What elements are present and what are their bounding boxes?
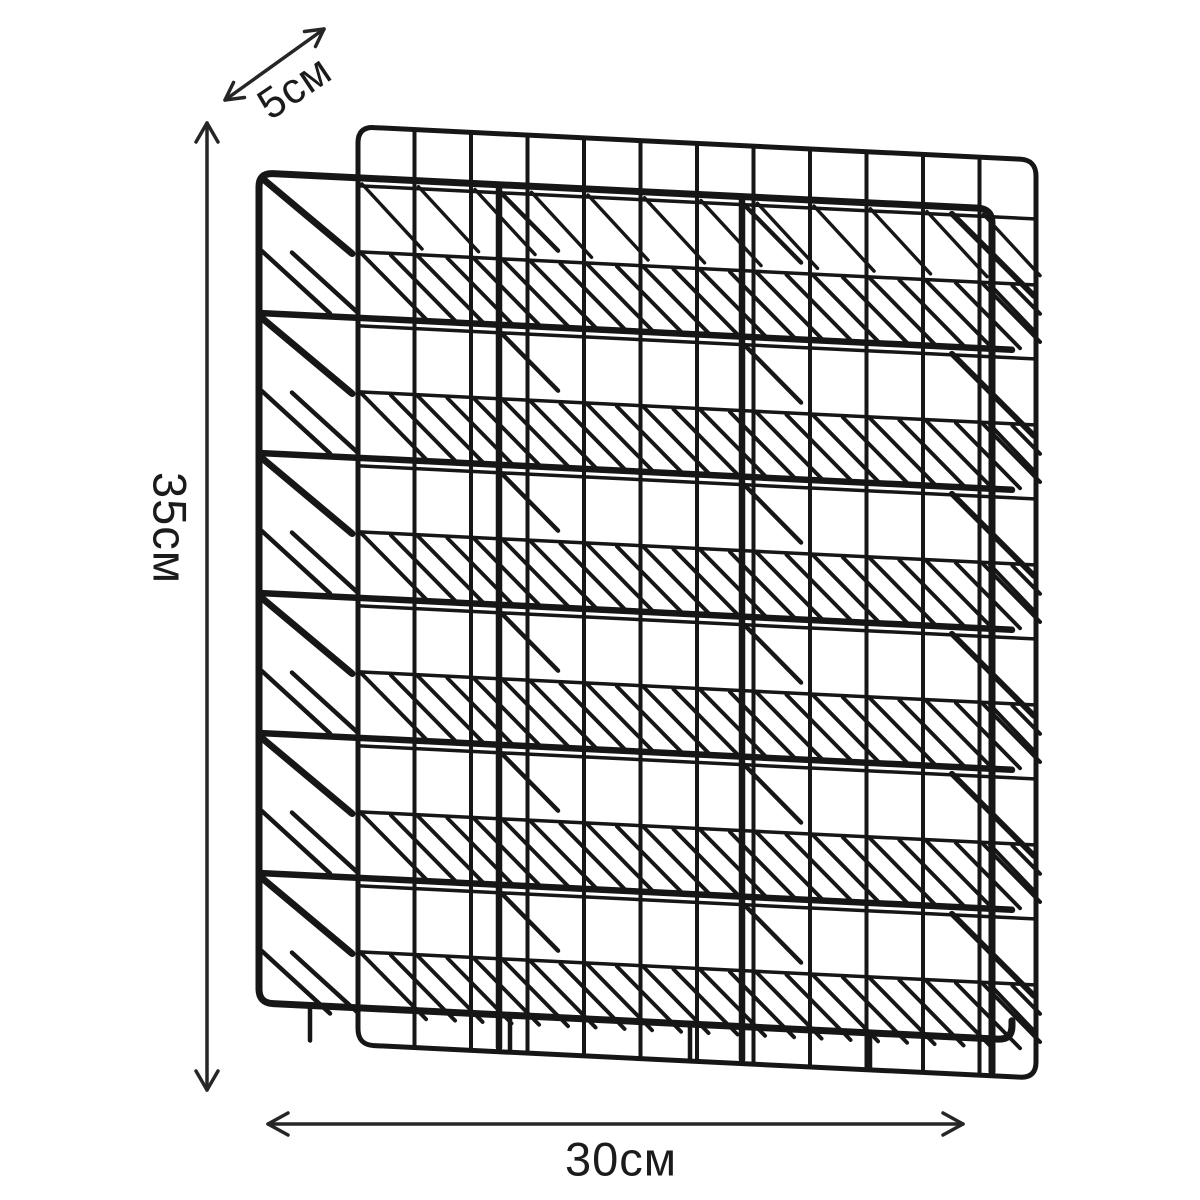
wire-rack-illustration <box>0 0 1200 1200</box>
height-dimension-label: 35см <box>147 472 194 584</box>
product-dimension-diagram: 5см 35см 30см <box>0 0 1200 1200</box>
wire-rack <box>259 122 1040 1078</box>
height-arrow <box>196 123 218 1090</box>
width-dimension-label: 30см <box>565 1136 677 1183</box>
